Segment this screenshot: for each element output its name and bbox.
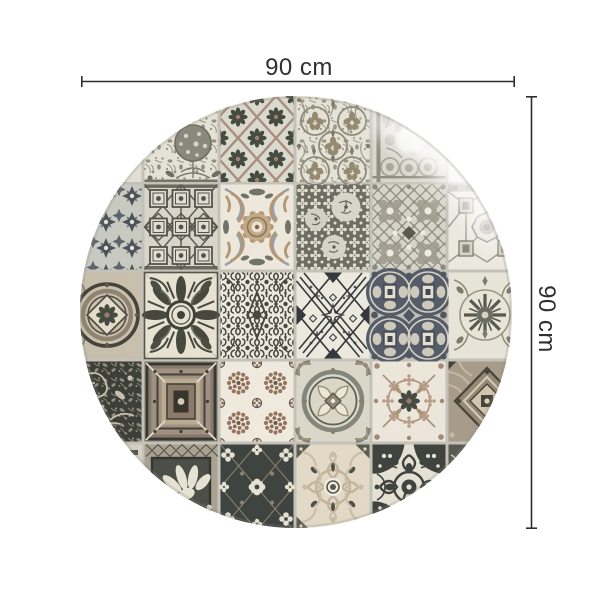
svg-text:90 cm: 90 cm bbox=[533, 285, 560, 353]
svg-text:90 cm: 90 cm bbox=[265, 54, 333, 81]
